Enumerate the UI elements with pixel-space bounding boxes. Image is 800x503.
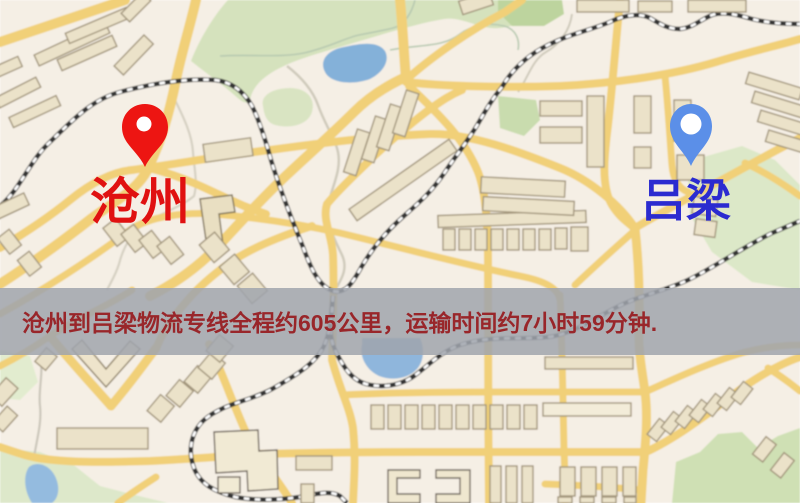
svg-text:吕梁: 吕梁 [641,175,731,226]
svg-text:沧州到吕梁物流专线全程约605公里，运输时间约7小时59分钟: 沧州到吕梁物流专线全程约605公里，运输时间约7小时59分钟. [22,310,657,336]
svg-text:沧州: 沧州 [90,174,190,230]
